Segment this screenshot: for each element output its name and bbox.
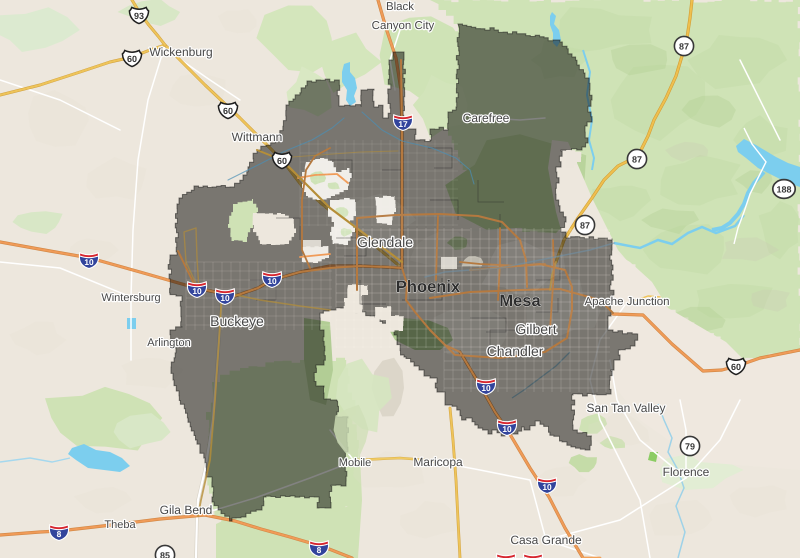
svg-text:10: 10	[502, 424, 512, 434]
svg-text:Mobile: Mobile	[339, 457, 371, 469]
svg-text:87: 87	[580, 220, 590, 230]
svg-text:188: 188	[776, 184, 791, 194]
svg-text:Wickenburg: Wickenburg	[149, 45, 212, 59]
svg-text:Florence: Florence	[663, 465, 710, 479]
svg-text:Gila Bend: Gila Bend	[160, 503, 213, 517]
svg-text:Gilbert: Gilbert	[515, 321, 556, 337]
svg-text:Wittmann: Wittmann	[232, 130, 283, 144]
svg-text:87: 87	[679, 41, 689, 51]
svg-text:Apache Junction: Apache Junction	[584, 296, 669, 308]
svg-text:Maricopa: Maricopa	[413, 455, 463, 469]
svg-text:Arlington: Arlington	[147, 337, 190, 349]
svg-text:10: 10	[84, 257, 94, 267]
svg-text:60: 60	[127, 54, 137, 64]
svg-text:San Tan Valley: San Tan Valley	[587, 401, 666, 415]
svg-text:85: 85	[160, 550, 170, 558]
svg-text:Black: Black	[386, 1, 414, 13]
svg-text:8: 8	[57, 529, 62, 539]
svg-text:10: 10	[481, 383, 491, 393]
svg-text:10: 10	[220, 293, 230, 303]
svg-text:93: 93	[134, 11, 144, 21]
svg-text:60: 60	[277, 156, 287, 166]
svg-text:87: 87	[632, 154, 642, 164]
svg-text:Wintersburg: Wintersburg	[101, 292, 160, 304]
svg-text:Mesa: Mesa	[499, 292, 541, 310]
svg-text:Buckeye: Buckeye	[210, 313, 264, 329]
svg-text:Chandler: Chandler	[487, 343, 544, 359]
svg-text:Canyon City: Canyon City	[372, 20, 435, 32]
svg-text:Casa Grande: Casa Grande	[510, 533, 582, 547]
svg-text:Glendale: Glendale	[357, 234, 413, 250]
svg-text:10: 10	[542, 482, 552, 492]
svg-text:10: 10	[192, 286, 202, 296]
svg-text:10: 10	[267, 276, 277, 286]
svg-text:79: 79	[685, 441, 695, 451]
svg-text:Carefree: Carefree	[463, 111, 510, 125]
svg-text:60: 60	[731, 362, 741, 372]
svg-text:Phoenix: Phoenix	[396, 278, 461, 296]
svg-text:60: 60	[223, 106, 233, 116]
svg-text:8: 8	[317, 545, 322, 555]
svg-text:17: 17	[398, 119, 408, 129]
svg-text:Theba: Theba	[104, 519, 136, 531]
